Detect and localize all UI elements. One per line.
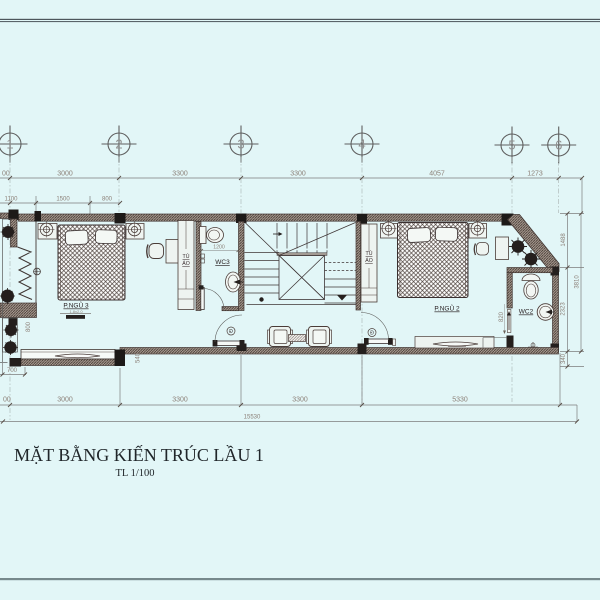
svg-text:3810: 3810 [575, 275, 581, 289]
svg-text:5: 5 [508, 138, 515, 153]
svg-text:WC2: WC2 [519, 309, 534, 316]
svg-text:3300: 3300 [292, 397, 308, 404]
svg-text:TL 1/100: TL 1/100 [116, 468, 155, 479]
svg-text:00: 00 [2, 171, 10, 178]
svg-text:3: 3 [237, 137, 244, 152]
svg-text:3300: 3300 [172, 171, 188, 178]
svg-text:Đ: Đ [370, 331, 374, 337]
svg-text:1: 1 [6, 137, 13, 152]
svg-text:800: 800 [102, 197, 113, 203]
svg-text:15530: 15530 [244, 415, 261, 421]
svg-text:TỦ: TỦ [366, 250, 373, 257]
svg-text:340: 340 [561, 353, 567, 364]
svg-text:800: 800 [26, 321, 32, 332]
svg-text:1500: 1500 [56, 197, 70, 203]
svg-text:4: 4 [358, 137, 365, 152]
svg-text:ÁO: ÁO [182, 260, 190, 267]
svg-text:Đ: Đ [229, 329, 233, 335]
svg-text:1273: 1273 [527, 171, 543, 178]
svg-text:3000: 3000 [57, 397, 73, 404]
svg-text:TỦ: TỦ [183, 253, 190, 260]
svg-text:820: 820 [499, 311, 505, 322]
svg-text:ÁO: ÁO [365, 257, 373, 264]
svg-text:00: 00 [3, 397, 11, 404]
svg-text:1488: 1488 [561, 233, 567, 247]
svg-text:1200: 1200 [213, 245, 225, 251]
svg-text:MẶT BẰNG KIẾN TRÚC LẦU 1: MẶT BẰNG KIẾN TRÚC LẦU 1 [14, 444, 264, 465]
svg-text:3300: 3300 [172, 397, 188, 404]
svg-text:540: 540 [136, 352, 142, 363]
svg-text:2323: 2323 [561, 302, 567, 316]
svg-text:4057: 4057 [429, 171, 445, 178]
svg-text:1100: 1100 [5, 197, 19, 203]
svg-text:6: 6 [555, 138, 562, 153]
svg-text:2: 2 [115, 137, 122, 152]
svg-text:5330: 5330 [452, 397, 468, 404]
svg-text:3300: 3300 [290, 171, 306, 178]
svg-text:700: 700 [7, 368, 18, 374]
svg-text:3000: 3000 [57, 171, 73, 178]
svg-text:WC3: WC3 [215, 259, 230, 266]
svg-text:P.NGỦ 2: P.NGỦ 2 [434, 304, 460, 313]
